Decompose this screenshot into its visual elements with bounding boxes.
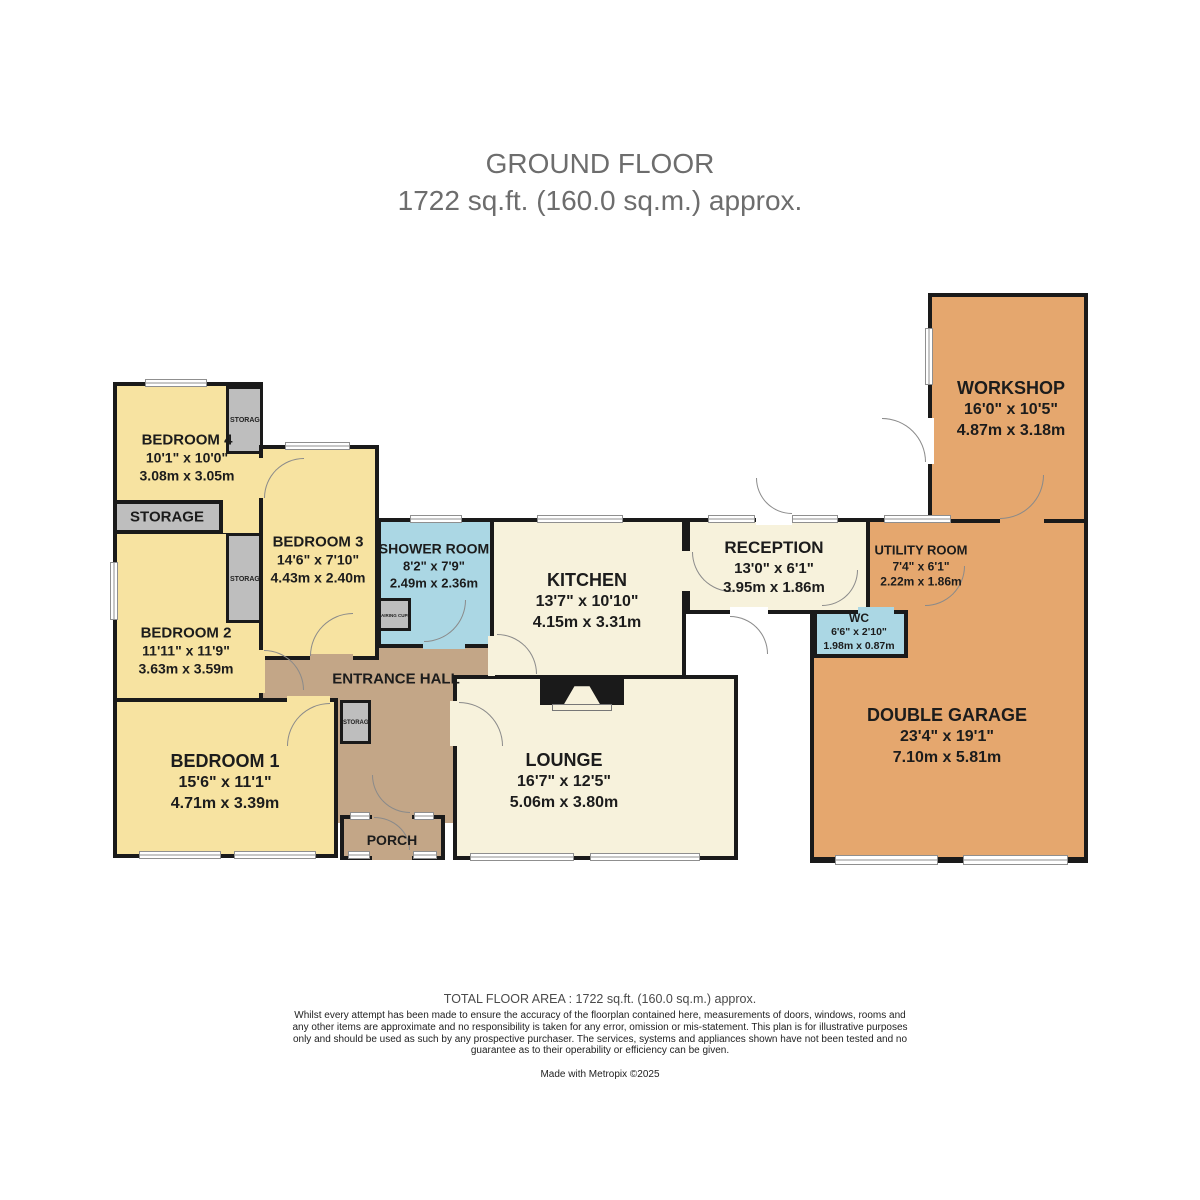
garage-label: DOUBLE GARAGE 23'4" x 19'1" 7.10m x 5.81… (867, 704, 1027, 768)
garage-door-opening-right (963, 855, 1068, 865)
utility-label: UTILITY ROOM 7'4" x 6'1" 2.22m x 1.86m (875, 542, 968, 589)
closet-airing-cupboard-label: AIRING CUPBOARD (381, 613, 411, 618)
workshop-imperial: 16'0" x 10'5" (957, 400, 1066, 420)
window-bedroom1-bottom-left (139, 851, 221, 859)
bedroom3-metric: 4.43m x 2.40m (271, 570, 366, 588)
garage-imperial: 23'4" x 19'1" (867, 727, 1027, 747)
wc-imperial: 6'6" x 2'10" (823, 626, 894, 639)
utility-name: UTILITY ROOM (875, 542, 968, 559)
window-lounge-bottom-left (470, 853, 574, 861)
footer-credit: Made with Metropix ©2025 (0, 1069, 1200, 1080)
bedroom1-label: BEDROOM 1 15'6" x 11'1" 4.71m x 3.39m (170, 750, 279, 814)
window-shower-top (410, 515, 462, 523)
window-bedroom2-left (110, 562, 118, 620)
closet-storage-top-label: STORAGE (230, 417, 263, 424)
wc-name: WC (823, 611, 894, 626)
bedroom2-metric: 3.63m x 3.59m (139, 661, 234, 679)
door-arc-reception-rear (730, 616, 768, 654)
window-bedroom4-top (145, 379, 207, 387)
closet-airing-cupboard: AIRING CUPBOARD (378, 598, 411, 631)
closet-storage-mid: STORAGE (226, 533, 263, 623)
kitchen-label: KITCHEN 13'7" x 10'10" 4.15m x 3.31m (533, 569, 642, 633)
shower-imperial: 8'2" x 7'9" (379, 558, 489, 575)
footer-disclaimer: Whilst every attempt has been made to en… (290, 1010, 910, 1057)
lounge-label: LOUNGE 16'7" x 12'5" 5.06m x 3.80m (510, 749, 619, 813)
closet-storage-hall-label: STORAGE (343, 720, 371, 726)
shower-metric: 2.49m x 2.36m (379, 575, 489, 592)
garage-corridor (974, 523, 1088, 616)
closet-storage-hall: STORAGE (340, 700, 371, 744)
bedroom4-label: BEDROOM 4 10'1" x 10'0" 3.08m x 3.05m (140, 431, 235, 486)
lounge-imperial: 16'7" x 12'5" (510, 772, 619, 792)
shower-name: SHOWER ROOM (379, 540, 489, 558)
utility-imperial: 7'4" x 6'1" (875, 559, 968, 574)
entrance-hall-label: ENTRANCE HALL (332, 669, 460, 688)
garage-name: DOUBLE GARAGE (867, 704, 1027, 727)
kitchen-metric: 4.15m x 3.31m (533, 613, 642, 633)
reception-label: RECEPTION 13'0" x 6'1" 3.95m x 1.86m (723, 537, 825, 597)
window-workshop-left (925, 328, 933, 385)
porch-label: PORCH (367, 832, 418, 850)
bedroom3-imperial: 14'6" x 7'10" (271, 552, 366, 570)
shower-label: SHOWER ROOM 8'2" x 7'9" 2.49m x 2.36m (379, 540, 489, 591)
porch-name: PORCH (367, 832, 418, 850)
door-gap-reception-front (756, 516, 792, 525)
reception-name: RECEPTION (723, 537, 825, 559)
footer-total-area: TOTAL FLOOR AREA : 1722 sq.ft. (160.0 sq… (0, 992, 1200, 1006)
door-arc-reception-front (756, 478, 792, 514)
workshop-name: WORKSHOP (957, 377, 1066, 400)
bedroom2-label: BEDROOM 2 11'11" x 11'9" 3.63m x 3.59m (139, 624, 234, 679)
bedroom4-passage (223, 497, 259, 533)
window-bedroom1-bottom-right (234, 851, 316, 859)
garage-door-opening-left (835, 855, 938, 865)
bedroom2-imperial: 11'11" x 11'9" (139, 643, 234, 661)
window-porch-bottom-left (348, 851, 370, 859)
entrance-hall-name: ENTRANCE HALL (332, 669, 460, 688)
window-porch-bottom-right (413, 851, 437, 859)
bedroom1-imperial: 15'6" x 11'1" (170, 773, 279, 793)
lounge-hearth (552, 704, 612, 711)
workshop-metric: 4.87m x 3.18m (957, 421, 1066, 441)
bedroom3-name: BEDROOM 3 (271, 533, 366, 552)
window-kitchen-top (537, 515, 623, 523)
door-gap-bedroom1 (287, 696, 330, 703)
window-reception-top-left (708, 515, 755, 523)
reception-imperial: 13'0" x 6'1" (723, 559, 825, 578)
kitchen-name: KITCHEN (533, 569, 642, 592)
utility-metric: 2.22m x 1.86m (875, 574, 968, 589)
wc-metric: 1.98m x 0.87m (823, 640, 894, 653)
bedroom4-name: BEDROOM 4 (140, 431, 235, 450)
bedroom1-name: BEDROOM 1 (170, 750, 279, 773)
bedroom2-name: BEDROOM 2 (139, 624, 234, 643)
window-porch-top-right (414, 812, 434, 820)
bedroom3-label: BEDROOM 3 14'6" x 7'10" 4.43m x 2.40m (271, 533, 366, 588)
window-utility-top (884, 515, 951, 523)
lounge-metric: 5.06m x 3.80m (510, 793, 619, 813)
door-gap-lounge (450, 701, 459, 746)
bedroom4-metric: 3.08m x 3.05m (140, 468, 235, 486)
door-gap-utility-garage (925, 607, 965, 616)
reception-metric: 3.95m x 1.86m (723, 578, 825, 597)
door-gap-kitchen-hall (488, 636, 495, 676)
door-gap-kitchen-reception (681, 551, 691, 591)
storage-main-text: STORAGE (130, 507, 204, 526)
door-gap-shower (423, 642, 465, 649)
door-arc-workshop-left (882, 418, 926, 462)
workshop-label: WORKSHOP 16'0" x 10'5" 4.87m x 3.18m (957, 377, 1066, 441)
garage-metric: 7.10m x 5.81m (867, 748, 1027, 768)
window-bedroom3-top (285, 442, 350, 450)
window-reception-top-right (792, 515, 838, 523)
window-lounge-bottom-right (590, 853, 700, 861)
bedroom1-metric: 4.71m x 3.39m (170, 794, 279, 814)
door-gap-porch-front (372, 851, 412, 860)
lounge-name: LOUNGE (510, 749, 619, 772)
window-porch-top-left (350, 812, 370, 820)
door-gap-reception-rear (730, 607, 768, 616)
kitchen-imperial: 13'7" x 10'10" (533, 592, 642, 612)
storage-main-label: STORAGE (130, 507, 204, 526)
door-gap-workshop-left (925, 418, 934, 464)
wc-label: WC 6'6" x 2'10" 1.98m x 0.87m (823, 611, 894, 653)
bedroom4-imperial: 10'1" x 10'0" (140, 450, 235, 468)
